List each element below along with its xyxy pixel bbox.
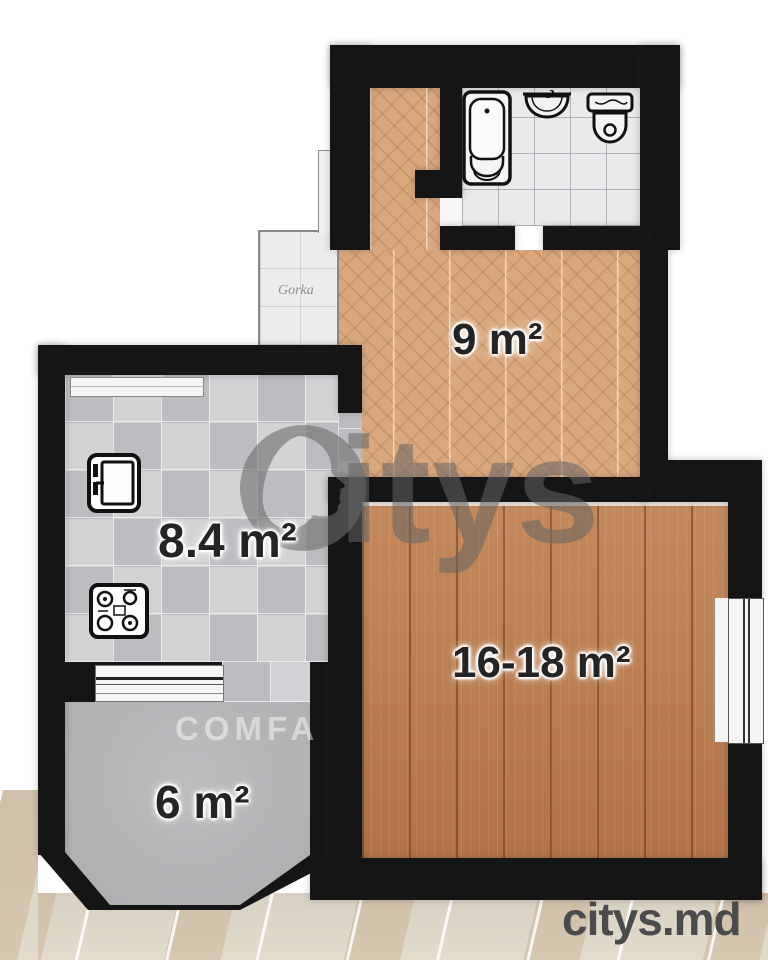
citys-md-logo: citys.md [562,892,741,946]
wall [640,45,680,250]
room-label-kitchen: 8.4 m² [158,514,297,569]
wall [338,345,362,413]
bathtub-icon [462,90,512,186]
hallway-floor-top [370,88,440,250]
wall [38,345,340,375]
floor-plan-image: Gorka [0,0,768,960]
living-window-sill [714,598,729,742]
comfa-watermark: COMFA [175,710,319,748]
wall [640,460,762,502]
wall [330,45,680,88]
room-label-balcony: 6 m² [155,775,250,829]
toilet-icon [585,92,635,154]
room-label-hallway: 9 m² [452,315,542,365]
wall [330,45,370,250]
photo-floor-left [0,790,38,960]
brand-watermark: itys [338,415,600,565]
fridge-icon [86,452,142,514]
wall [38,345,65,855]
kitchen-window [70,377,204,397]
wall [415,170,462,198]
wall [543,226,648,250]
room-label-living: 16-18 m² [452,638,631,688]
balcony-window [95,665,224,702]
wall [640,250,668,465]
living-window [728,598,764,744]
wall [440,88,462,178]
wall [440,226,515,250]
wall [728,502,762,600]
bathroom-door-opening [440,198,462,228]
sink-icon [520,90,574,136]
stove-icon [88,582,150,640]
balcony-passage [222,662,310,702]
porch-label: Gorka [278,283,314,299]
